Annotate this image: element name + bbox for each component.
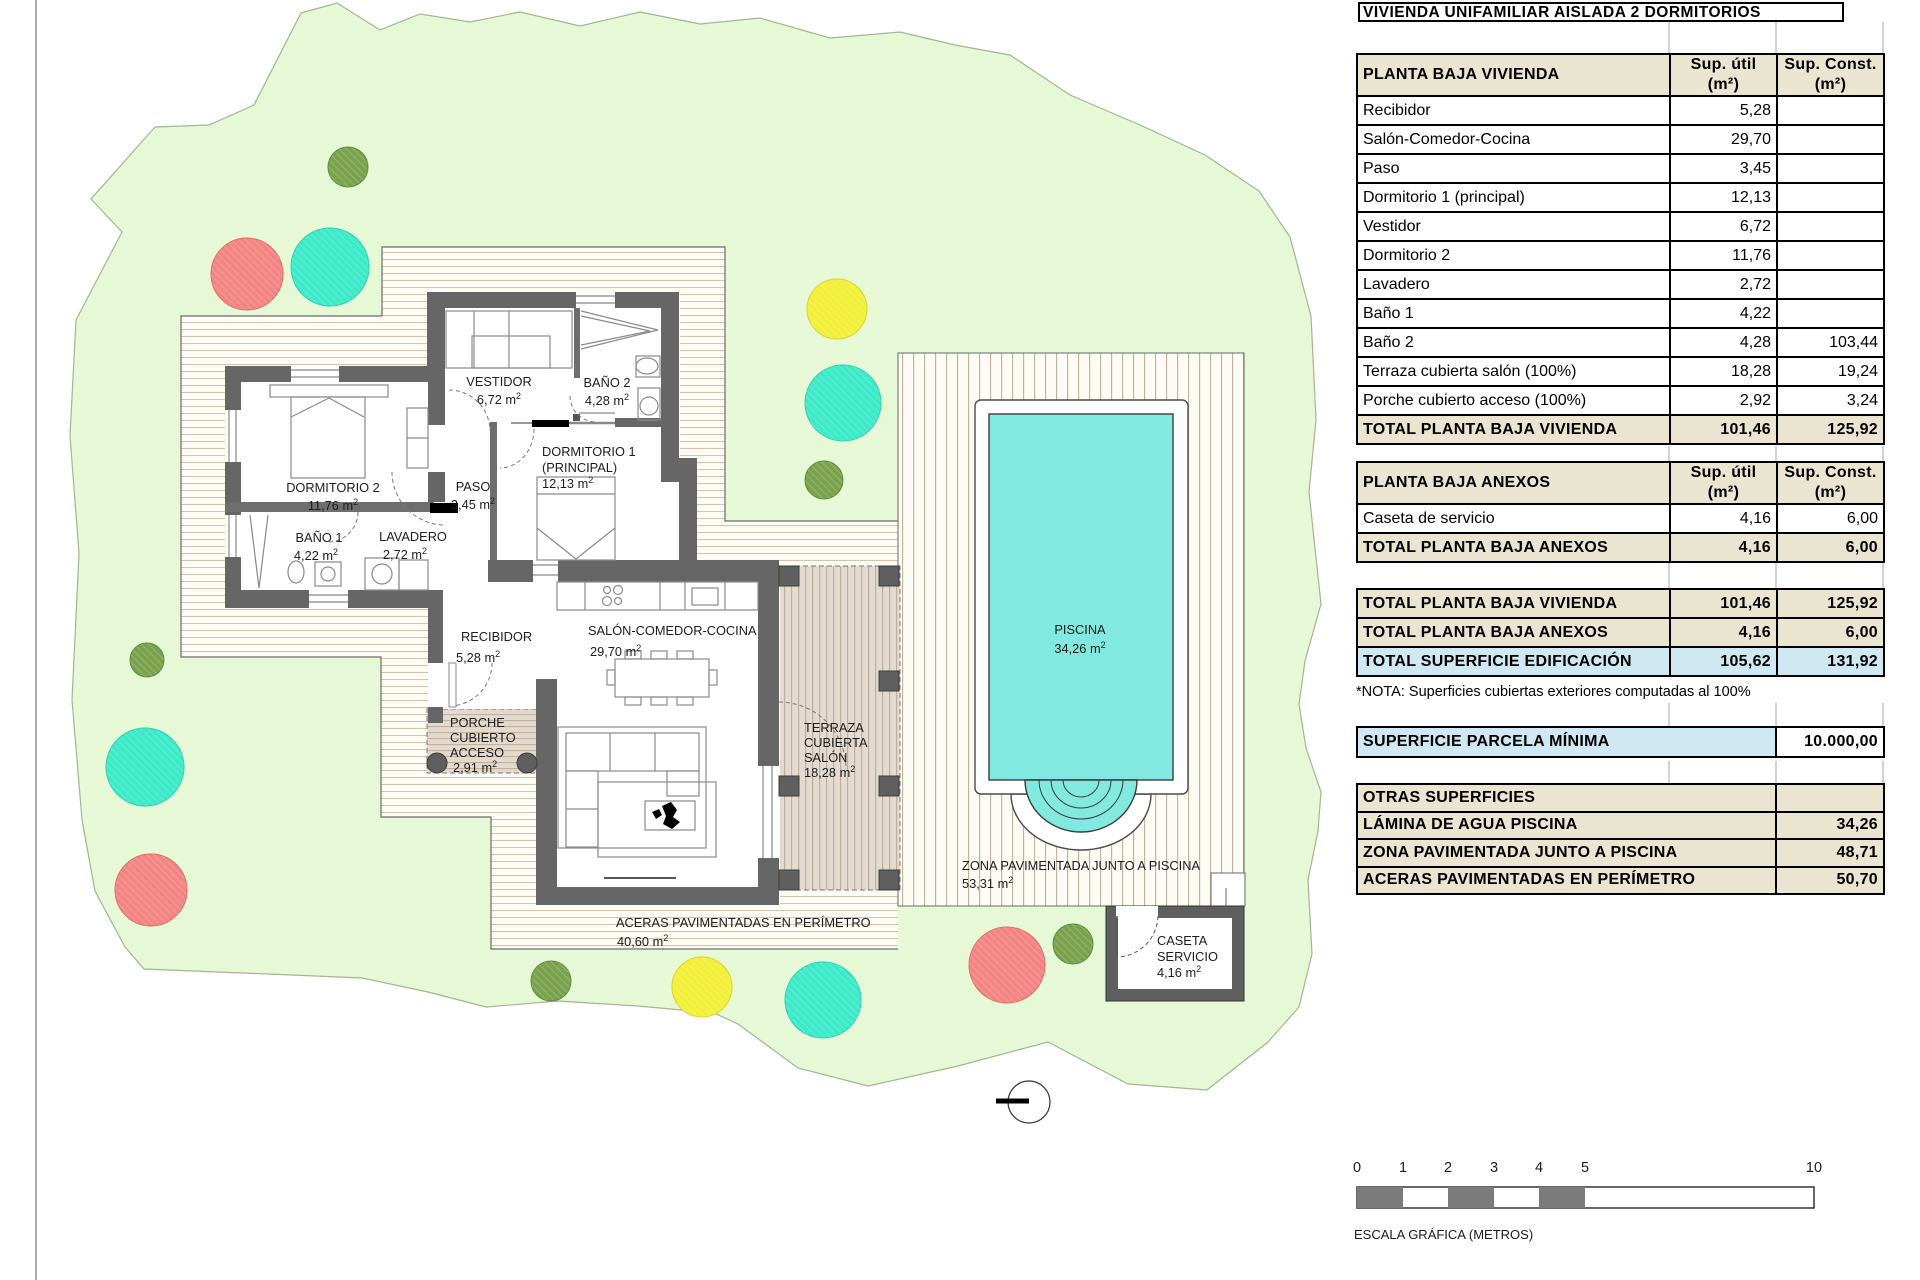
- svg-text:BAÑO 2: BAÑO 2: [584, 375, 631, 390]
- svg-text:CUBIERTO: CUBIERTO: [450, 730, 516, 745]
- svg-text:DORMITORIO 2: DORMITORIO 2: [286, 480, 380, 495]
- svg-text:4,28 m2: 4,28 m2: [585, 392, 629, 408]
- svg-text:6,72 m2: 6,72 m2: [477, 391, 521, 407]
- svg-text:4,16 m2: 4,16 m2: [1157, 964, 1201, 980]
- svg-text:10: 10: [1806, 1160, 1822, 1176]
- svg-text:11,76 m2: 11,76 m2: [308, 497, 358, 513]
- svg-text:BAÑO 1: BAÑO 1: [296, 530, 343, 545]
- svg-text:3,45 m2: 3,45 m2: [451, 496, 495, 512]
- svg-text:ESCALA GRÁFICA (METROS): ESCALA GRÁFICA (METROS): [1354, 1227, 1533, 1242]
- svg-text:CASETA: CASETA: [1157, 933, 1208, 948]
- svg-text:2: 2: [1444, 1160, 1452, 1176]
- svg-text:SERVICIO: SERVICIO: [1157, 949, 1218, 964]
- svg-text:PORCHE: PORCHE: [450, 715, 505, 730]
- svg-text:2,91 m2: 2,91 m2: [453, 759, 497, 775]
- svg-text:ZONA PAVIMENTADA JUNTO A PISCI: ZONA PAVIMENTADA JUNTO A PISCINA: [962, 858, 1200, 873]
- svg-text:4: 4: [1535, 1160, 1543, 1176]
- svg-text:SALÓN-COMEDOR-COCINA: SALÓN-COMEDOR-COCINA: [588, 623, 757, 638]
- svg-text:PASO: PASO: [456, 479, 491, 494]
- svg-text:ACERAS PAVIMENTADAS EN PERÍMET: ACERAS PAVIMENTADAS EN PERÍMETRO: [616, 915, 871, 930]
- svg-text:5: 5: [1581, 1160, 1589, 1176]
- svg-text:34,26 m2: 34,26 m2: [1054, 640, 1105, 656]
- svg-text:0: 0: [1353, 1160, 1361, 1176]
- svg-text:29,70 m2: 29,70 m2: [590, 643, 641, 659]
- svg-text:18,28 m2: 18,28 m2: [804, 764, 855, 780]
- svg-text:TERRAZA: TERRAZA: [804, 720, 864, 735]
- svg-text:SALÓN: SALÓN: [804, 750, 847, 765]
- svg-text:53,31 m2: 53,31 m2: [962, 875, 1013, 891]
- svg-text:PISCINA: PISCINA: [1054, 622, 1106, 637]
- svg-text:1: 1: [1399, 1160, 1407, 1176]
- svg-text:(PRINCIPAL): (PRINCIPAL): [542, 460, 617, 475]
- svg-text:3: 3: [1490, 1160, 1498, 1176]
- svg-text:40,60 m2: 40,60 m2: [617, 933, 668, 949]
- svg-text:VESTIDOR: VESTIDOR: [466, 374, 531, 389]
- svg-text:5,28 m2: 5,28 m2: [456, 649, 500, 665]
- svg-text:RECIBIDOR: RECIBIDOR: [461, 629, 532, 644]
- svg-text:ACCESO: ACCESO: [450, 745, 504, 760]
- svg-text:12,13 m2: 12,13 m2: [542, 475, 593, 491]
- svg-text:LAVADERO: LAVADERO: [379, 529, 447, 544]
- svg-text:CUBIERTA: CUBIERTA: [804, 735, 868, 750]
- svg-text:4,22 m2: 4,22 m2: [294, 547, 338, 563]
- svg-text:DORMITORIO 1: DORMITORIO 1: [542, 444, 636, 459]
- svg-text:2,72 m2: 2,72 m2: [383, 546, 427, 562]
